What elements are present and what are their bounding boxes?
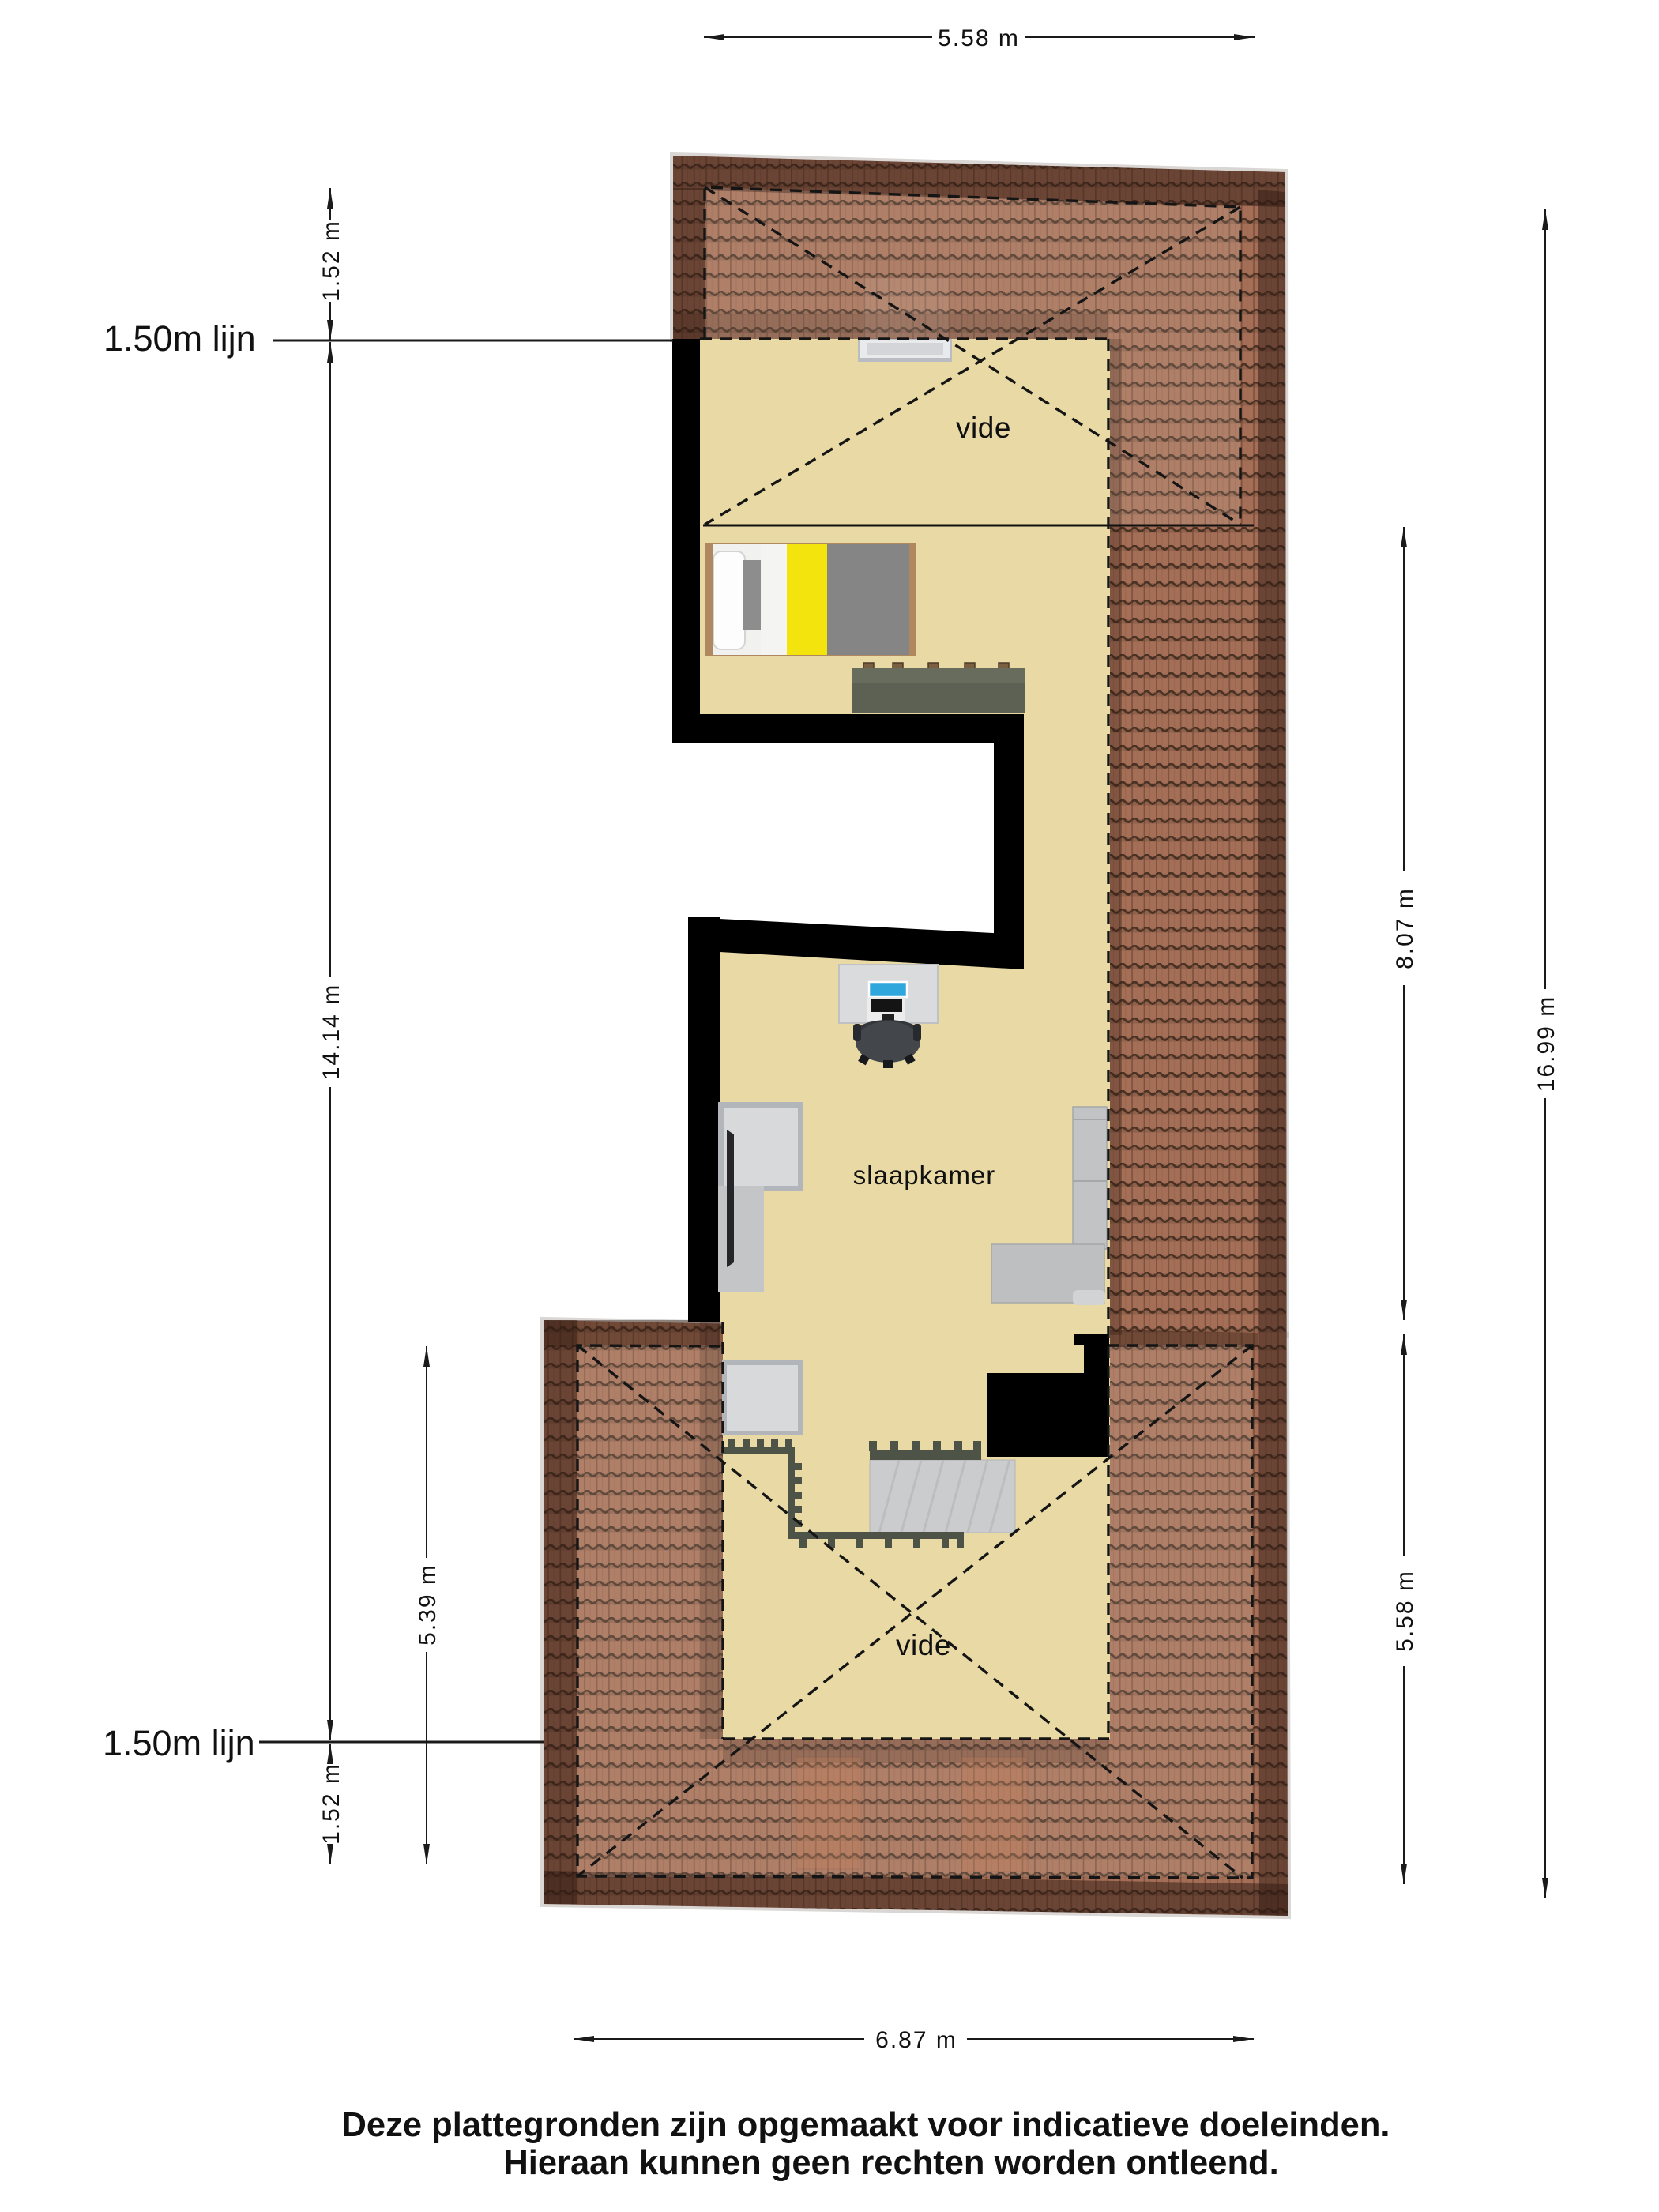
svg-text:Deze plattegronden zijn opgema: Deze plattegronden zijn opgemaakt voor i…: [341, 2106, 1390, 2144]
svg-text:1.52 m: 1.52 m: [318, 220, 344, 302]
svg-text:vide: vide: [896, 1629, 951, 1661]
svg-text:slaapkamer: slaapkamer: [853, 1161, 996, 1190]
svg-text:5.58 m: 5.58 m: [1392, 1570, 1418, 1652]
svg-text:16.99 m: 16.99 m: [1533, 995, 1559, 1092]
svg-text:Hieraan kunnen geen rechten wo: Hieraan kunnen geen rechten worden ontle…: [503, 2144, 1278, 2182]
svg-text:5.39 m: 5.39 m: [415, 1563, 441, 1646]
svg-text:vide: vide: [956, 412, 1011, 444]
svg-text:6.87 m: 6.87 m: [875, 2027, 957, 2053]
svg-text:8.07 m: 8.07 m: [1392, 887, 1418, 969]
svg-text:5.58 m: 5.58 m: [938, 25, 1020, 51]
svg-text:1.50m lijn: 1.50m lijn: [103, 1723, 255, 1763]
svg-text:1.52 m: 1.52 m: [318, 1762, 344, 1845]
svg-text:14.14 m: 14.14 m: [318, 984, 344, 1080]
svg-text:1.50m lijn: 1.50m lijn: [103, 318, 256, 359]
